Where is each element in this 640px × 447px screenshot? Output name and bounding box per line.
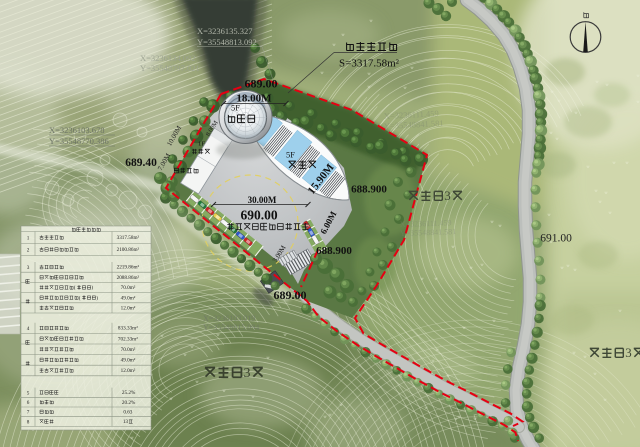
- svg-text:X=3236103.678: X=3236103.678: [49, 125, 105, 135]
- svg-text:30.00M: 30.00M: [248, 195, 277, 205]
- svg-text:18.00M: 18.00M: [236, 93, 272, 105]
- svg-text:690.00: 690.00: [240, 208, 277, 223]
- svg-text:(: (: [74, 284, 76, 291]
- svg-text:2088.86m²: 2088.86m²: [117, 275, 140, 281]
- svg-text:8: 8: [27, 419, 30, 425]
- svg-text:702.33m²: 702.33m²: [118, 336, 138, 342]
- svg-text:2: 2: [27, 247, 30, 253]
- svg-text:70.0m²: 70.0m²: [121, 285, 136, 291]
- svg-text:3: 3: [444, 189, 450, 203]
- svg-text:3: 3: [625, 346, 631, 360]
- svg-text:25.2%: 25.2%: [122, 390, 136, 396]
- svg-text:5F: 5F: [286, 151, 295, 160]
- svg-text:4: 4: [27, 326, 30, 332]
- svg-text:13: 13: [123, 419, 129, 425]
- svg-text:3: 3: [244, 366, 251, 381]
- svg-text:12.0m²: 12.0m²: [121, 306, 136, 312]
- svg-text:688.900: 688.900: [351, 184, 387, 196]
- svg-text:2219.86m²: 2219.86m²: [117, 265, 140, 271]
- svg-text:S=3317.58m²: S=3317.58m²: [339, 58, 400, 70]
- svg-text:1: 1: [27, 235, 30, 241]
- svg-text:X=3236134.092: X=3236134.092: [140, 53, 196, 63]
- svg-text:689.40: 689.40: [125, 157, 157, 169]
- svg-text:0.63: 0.63: [123, 409, 132, 415]
- svg-text:688.900: 688.900: [316, 245, 352, 257]
- svg-text:X=3236103.019: X=3236103.019: [203, 314, 255, 323]
- svg-text:691.00: 691.00: [540, 233, 572, 245]
- svg-text:689.00: 689.00: [274, 288, 307, 302]
- svg-text:(: (: [79, 294, 81, 301]
- svg-text:6: 6: [27, 400, 30, 406]
- svg-text:70.0m²: 70.0m²: [121, 347, 136, 353]
- svg-text:20.2%: 20.2%: [122, 400, 136, 406]
- svg-text:): ): [91, 284, 93, 291]
- svg-text:5: 5: [27, 390, 30, 396]
- svg-text:7: 7: [27, 410, 30, 416]
- svg-text:): ): [96, 294, 98, 301]
- svg-text:Y=35548770.386: Y=35548770.386: [49, 136, 109, 146]
- svg-text:Y=35548815.094: Y=35548815.094: [203, 323, 259, 332]
- svg-text:Y=35548797.021: Y=35548797.021: [140, 63, 200, 73]
- svg-text:X=3236135.327: X=3236135.327: [197, 26, 253, 36]
- svg-text:2100.86m²: 2100.86m²: [117, 247, 140, 253]
- svg-text:3317.58m²: 3317.58m²: [117, 235, 140, 241]
- svg-text:833.33m²: 833.33m²: [118, 326, 138, 332]
- svg-text:12.0m²: 12.0m²: [121, 368, 136, 374]
- svg-text:1F: 1F: [198, 140, 205, 147]
- svg-text:3: 3: [27, 265, 30, 271]
- svg-text:5F: 5F: [231, 104, 240, 113]
- svg-text:Y=35548813.092: Y=35548813.092: [197, 37, 257, 47]
- svg-text:49.0m²: 49.0m²: [121, 358, 136, 364]
- svg-text:49.0m²: 49.0m²: [121, 295, 136, 301]
